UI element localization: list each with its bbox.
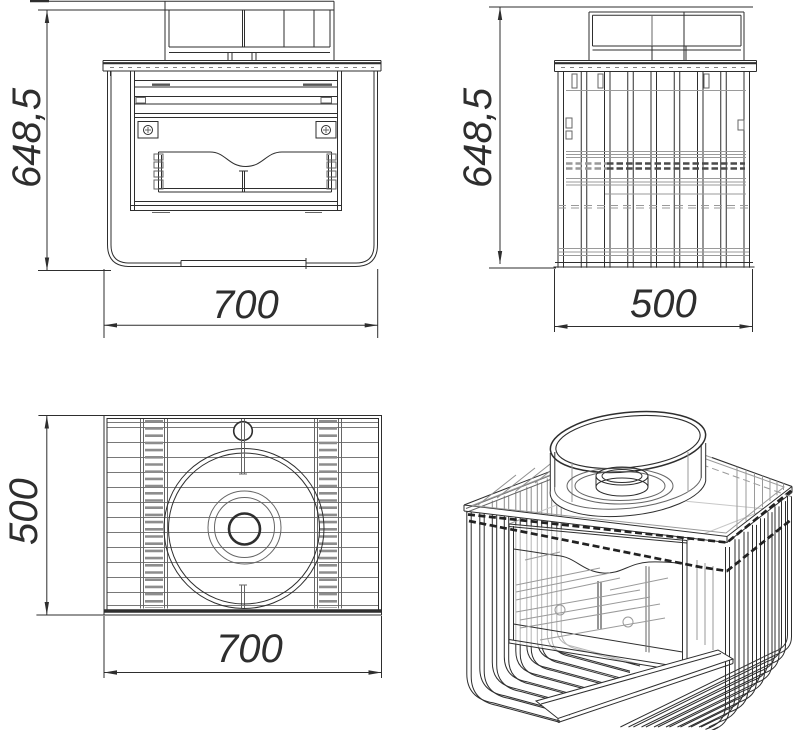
svg-text:500: 500 <box>2 478 46 545</box>
svg-text:500: 500 <box>630 282 697 326</box>
svg-text:648,5: 648,5 <box>5 87 49 188</box>
svg-text:700: 700 <box>212 283 279 327</box>
svg-text:700: 700 <box>216 627 283 671</box>
svg-text:648,5: 648,5 <box>456 87 500 188</box>
